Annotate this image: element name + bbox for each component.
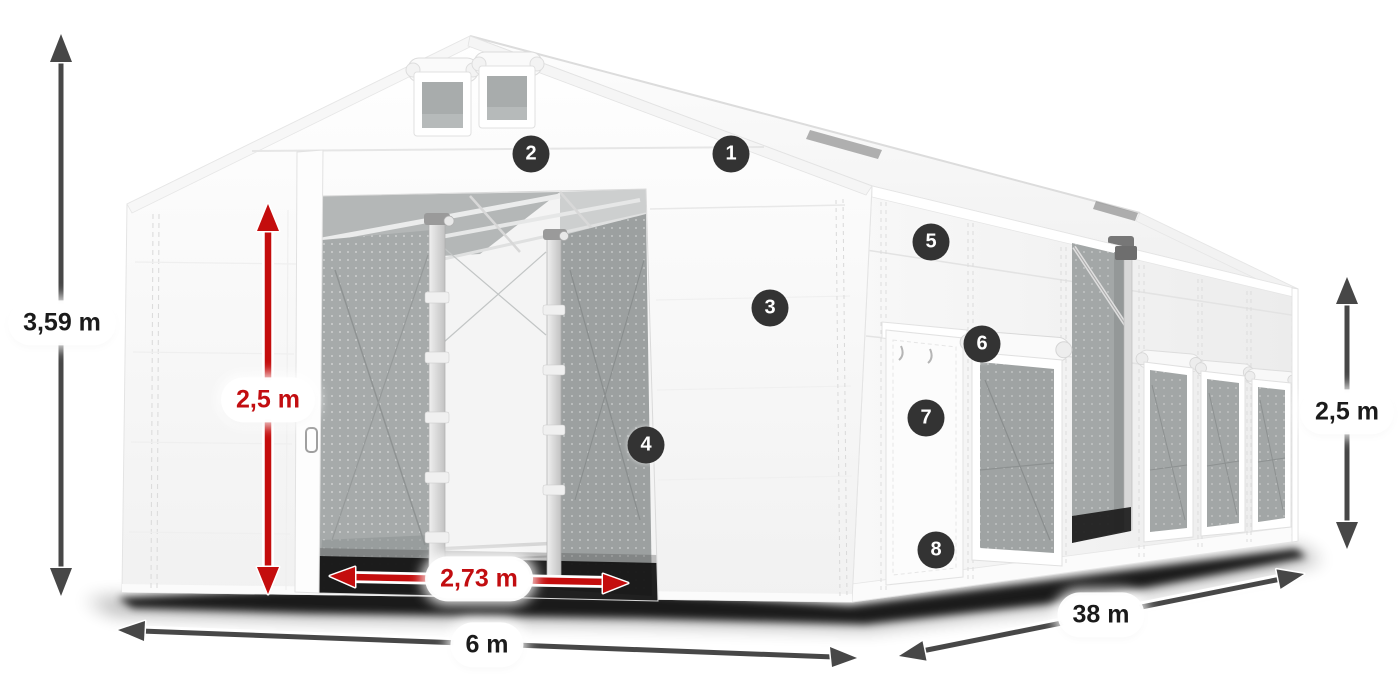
side-window-near (959, 330, 1073, 566)
marker-4[interactable]: 4 (628, 427, 665, 464)
marker-8[interactable]: 8 (918, 532, 955, 569)
doorway-post (1124, 253, 1132, 532)
far-windows (1135, 349, 1298, 542)
marker-6[interactable]: 6 (964, 326, 1001, 363)
marker-1[interactable]: 1 (713, 136, 750, 173)
far-corner-strip (1292, 288, 1298, 542)
gable-window-right (472, 52, 544, 128)
dimension-label-entrance-width: 2,73 m (428, 559, 530, 598)
marker-2[interactable]: 2 (513, 136, 550, 173)
dimension-label-tent-length: 38 m (1061, 595, 1142, 634)
tent-illustration (0, 0, 1400, 700)
entrance-left-jamb (295, 150, 323, 593)
marker-5[interactable]: 5 (913, 224, 950, 261)
entrance-interior (310, 180, 670, 610)
dimension-label-entrance-height: 2,5 m (224, 380, 312, 419)
gable-window-left (406, 58, 480, 136)
dimension-label-total-height: 3,59 m (11, 303, 113, 342)
tent-product-visualization: 3,59 m 2,5 m 2,73 m 6 m 38 m 2,5 m 1 2 3… (0, 0, 1400, 700)
side-doorway-open (1072, 243, 1137, 543)
dimension-label-side-height: 2,5 m (1303, 392, 1391, 431)
marker-3[interactable]: 3 (752, 290, 789, 327)
dimension-label-tent-width: 6 m (453, 625, 520, 664)
marker-7[interactable]: 7 (908, 400, 945, 437)
door-handle (306, 428, 317, 452)
